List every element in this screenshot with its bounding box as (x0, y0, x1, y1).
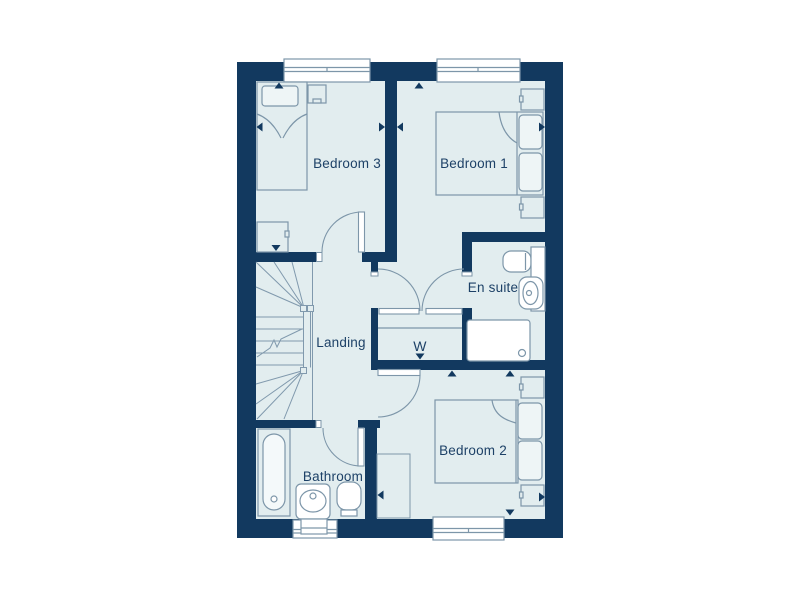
ensuite-shower-tray (467, 320, 530, 361)
wall-stub-landing (371, 262, 378, 272)
window-bedroom3 (284, 59, 370, 82)
bedroom2-nightstand-top (520, 377, 545, 398)
label-bedroom1: Bedroom 1 (440, 156, 508, 171)
bedroom1-nightstand-bottom (520, 197, 545, 218)
bedroom2-double-bed (435, 400, 542, 483)
ensuite-toilet (503, 251, 531, 272)
label-wardrobe: W (413, 338, 427, 354)
bedroom1-nightstand-top (520, 89, 545, 110)
wall-bed3-bed1 (385, 81, 397, 258)
label-bedroom3: Bedroom 3 (313, 156, 381, 171)
bedroom1-double-bed (436, 112, 543, 195)
bedroom3-chest (257, 222, 289, 252)
label-bedroom2: Bedroom 2 (439, 443, 507, 458)
wall-bathroom-right (365, 420, 377, 519)
bathroom-toilet (337, 482, 361, 516)
bedroom3-bedside-cabinet (308, 85, 326, 103)
wall-ensuite-top (462, 232, 545, 242)
wall-ensuite-left-upper (462, 232, 472, 272)
bathroom-basin (296, 484, 330, 534)
floorplan-first-floor: Bedroom 3 Bedroom 1 En suite Landing W B… (0, 0, 800, 600)
label-ensuite: En suite (468, 280, 518, 295)
wall-wardrobe-left (371, 308, 378, 368)
label-bathroom: Bathroom (303, 469, 363, 484)
window-bedroom2 (433, 517, 504, 540)
bedroom2-cupboard (377, 454, 410, 518)
label-landing: Landing (316, 335, 365, 350)
wall-bed3-bottom-left (256, 252, 322, 262)
bedroom3-single-bed (257, 82, 307, 190)
window-bedroom1 (437, 59, 520, 82)
bathroom-bathtub (258, 429, 290, 516)
wall-bed3-bottom-right (362, 252, 397, 262)
wall-bathroom-top-left (256, 420, 316, 428)
floorplan-drawing: Bedroom 3 Bedroom 1 En suite Landing W B… (0, 0, 800, 600)
